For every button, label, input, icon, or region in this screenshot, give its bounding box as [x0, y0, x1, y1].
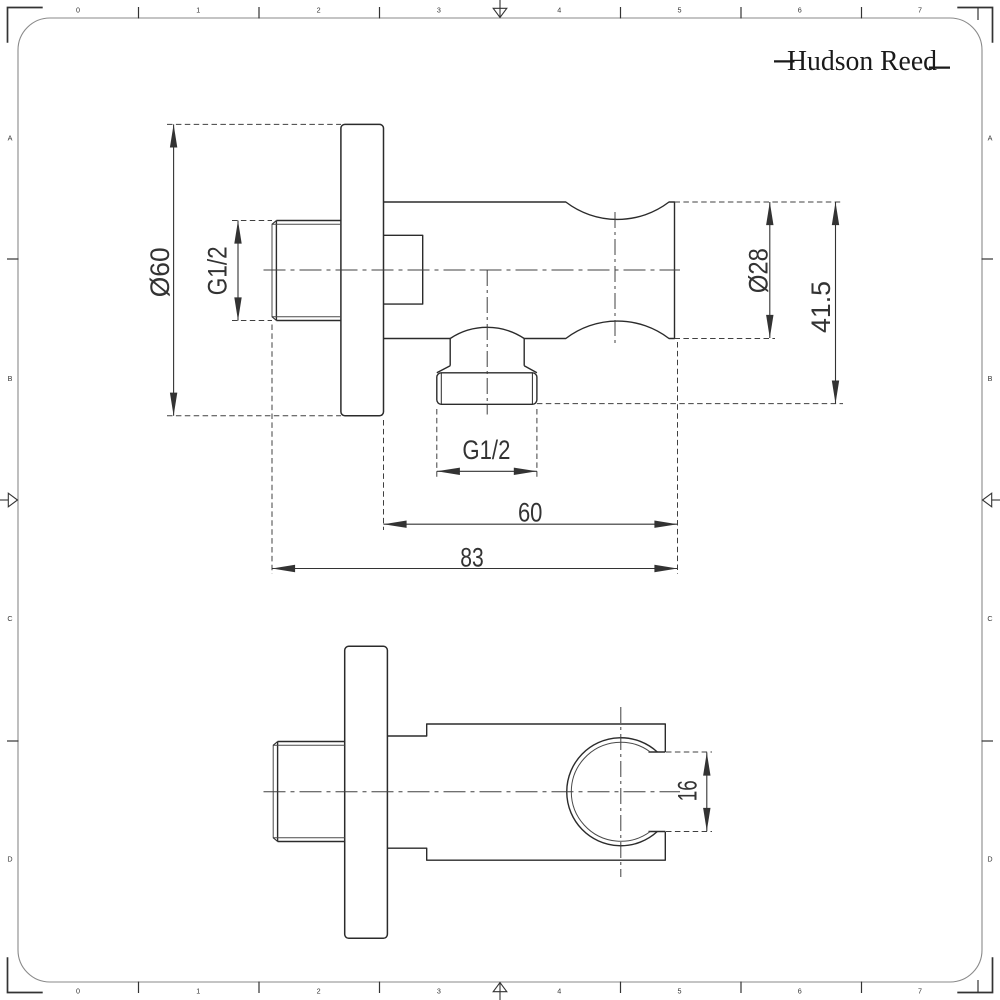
svg-text:3: 3 — [437, 987, 441, 996]
svg-text:A: A — [988, 133, 993, 142]
svg-text:G1/2: G1/2 — [203, 246, 233, 295]
svg-text:1: 1 — [196, 6, 200, 15]
svg-text:0: 0 — [76, 6, 80, 15]
svg-text:83: 83 — [460, 543, 484, 573]
svg-text:2: 2 — [317, 987, 321, 996]
svg-text:0: 0 — [76, 987, 80, 996]
svg-text:B: B — [8, 374, 13, 383]
svg-text:Ø60: Ø60 — [145, 247, 175, 297]
svg-text:60: 60 — [518, 497, 543, 527]
svg-text:3: 3 — [437, 6, 441, 15]
svg-text:2: 2 — [317, 6, 321, 15]
svg-text:C: C — [987, 614, 992, 623]
svg-text:5: 5 — [678, 6, 682, 15]
svg-text:6: 6 — [798, 987, 802, 996]
svg-text:41.5: 41.5 — [806, 281, 836, 333]
svg-text:D: D — [987, 855, 992, 864]
svg-text:A: A — [8, 133, 13, 142]
svg-text:7: 7 — [918, 987, 922, 996]
svg-text:4: 4 — [557, 987, 561, 996]
svg-text:4: 4 — [557, 6, 561, 15]
svg-text:16: 16 — [672, 780, 702, 801]
svg-text:5: 5 — [678, 987, 682, 996]
svg-text:B: B — [988, 374, 993, 383]
svg-text:G1/2: G1/2 — [462, 435, 510, 465]
svg-text:Hudson Reed: Hudson Reed — [787, 46, 937, 77]
svg-text:C: C — [7, 614, 12, 623]
svg-text:6: 6 — [798, 6, 802, 15]
svg-text:D: D — [7, 855, 12, 864]
svg-text:1: 1 — [196, 987, 200, 996]
svg-text:7: 7 — [918, 6, 922, 15]
svg-text:Ø28: Ø28 — [743, 248, 773, 293]
